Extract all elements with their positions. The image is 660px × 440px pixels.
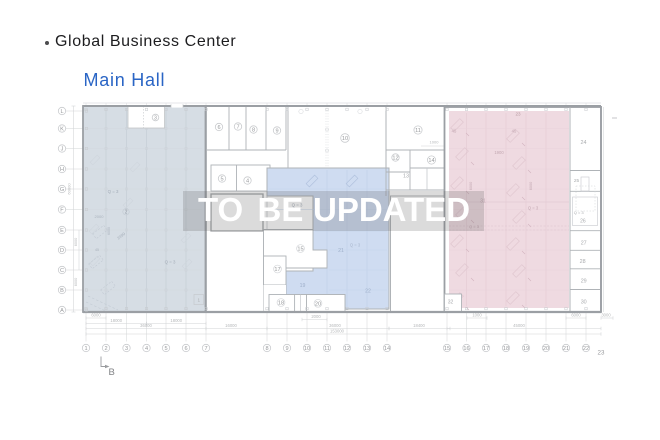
- svg-text:13: 13: [403, 174, 409, 180]
- svg-text:17: 17: [483, 346, 489, 352]
- svg-text:F: F: [60, 208, 64, 214]
- svg-text:3000: 3000: [601, 313, 611, 318]
- svg-text:27: 27: [581, 241, 587, 247]
- svg-text:B: B: [60, 288, 64, 294]
- svg-text:23: 23: [598, 350, 605, 357]
- svg-text:22: 22: [365, 289, 371, 295]
- svg-text:45: 45: [95, 248, 99, 252]
- svg-text:C: C: [60, 268, 64, 274]
- svg-text:10: 10: [304, 346, 310, 352]
- svg-text:45: 45: [452, 129, 457, 134]
- svg-text:5: 5: [164, 346, 167, 352]
- svg-text:2000: 2000: [311, 314, 321, 319]
- svg-text:20: 20: [543, 346, 549, 352]
- svg-text:3: 3: [154, 116, 157, 122]
- svg-text:Q = 3: Q = 3: [574, 210, 585, 215]
- svg-text:2: 2: [104, 346, 107, 352]
- svg-text:11: 11: [324, 346, 330, 352]
- svg-text:1: 1: [84, 346, 87, 352]
- svg-text:K: K: [60, 127, 64, 133]
- svg-text:18000: 18000: [170, 318, 182, 323]
- svg-text:32: 32: [448, 300, 454, 306]
- svg-text:12: 12: [344, 346, 350, 352]
- svg-text:21: 21: [338, 248, 344, 254]
- svg-text:20: 20: [315, 301, 321, 307]
- svg-text:18: 18: [278, 301, 284, 307]
- svg-text:6000: 6000: [91, 313, 101, 318]
- svg-text:153000: 153000: [330, 329, 345, 334]
- svg-text:18: 18: [503, 346, 509, 352]
- svg-text:L: L: [60, 109, 63, 115]
- svg-text:29: 29: [581, 279, 587, 285]
- svg-text:45000: 45000: [513, 323, 525, 328]
- svg-text:12: 12: [392, 156, 398, 162]
- svg-text:6000: 6000: [571, 313, 581, 318]
- svg-text:Q = 3: Q = 3: [528, 206, 539, 211]
- svg-text:8: 8: [265, 346, 268, 352]
- svg-text:G: G: [60, 187, 64, 193]
- svg-text:7: 7: [236, 125, 239, 131]
- svg-text:16000: 16000: [225, 323, 237, 328]
- svg-text:16: 16: [463, 346, 469, 352]
- svg-text:Q = 3: Q = 3: [350, 243, 361, 248]
- svg-text:19: 19: [523, 346, 529, 352]
- svg-text:9: 9: [275, 129, 278, 135]
- svg-text:9: 9: [285, 346, 288, 352]
- svg-text:7: 7: [204, 346, 207, 352]
- svg-text:10: 10: [342, 136, 348, 142]
- svg-text:1000: 1000: [430, 140, 440, 145]
- svg-text:6000: 6000: [74, 238, 78, 246]
- svg-text:A: A: [60, 308, 64, 314]
- svg-text:21: 21: [563, 346, 569, 352]
- svg-text:23: 23: [515, 112, 521, 117]
- svg-text:3: 3: [125, 346, 128, 352]
- svg-text:15: 15: [297, 247, 303, 253]
- svg-text:14: 14: [428, 158, 434, 164]
- svg-text:Q = 3: Q = 3: [165, 260, 176, 265]
- svg-text:4: 4: [145, 346, 148, 352]
- svg-text:1900: 1900: [494, 150, 504, 155]
- svg-text:18000: 18000: [110, 318, 122, 323]
- svg-text:Q = 3: Q = 3: [108, 189, 119, 194]
- svg-text:15: 15: [444, 346, 450, 352]
- svg-text:36000: 36000: [140, 323, 152, 328]
- svg-text:28: 28: [580, 259, 586, 265]
- svg-text:36000: 36000: [329, 323, 341, 328]
- svg-text:4: 4: [246, 179, 249, 185]
- svg-text:E: E: [60, 228, 64, 234]
- svg-text:6000: 6000: [107, 227, 111, 235]
- svg-text:1000: 1000: [472, 313, 482, 318]
- svg-text:J: J: [61, 147, 64, 153]
- svg-text:11: 11: [415, 128, 421, 134]
- svg-text:6000: 6000: [469, 182, 473, 190]
- svg-text:2000: 2000: [95, 214, 105, 219]
- svg-text:B: B: [109, 367, 115, 378]
- svg-text:45: 45: [512, 129, 517, 134]
- svg-text:6: 6: [217, 125, 220, 131]
- svg-text:6000: 6000: [529, 182, 533, 190]
- svg-text:25: 25: [574, 178, 580, 184]
- svg-text:H: H: [60, 167, 64, 173]
- svg-text:30: 30: [581, 300, 587, 306]
- svg-text:D: D: [60, 248, 64, 254]
- svg-text:17: 17: [274, 267, 280, 273]
- svg-text:22: 22: [583, 346, 589, 352]
- svg-text:60000: 60000: [67, 183, 72, 195]
- svg-text:18400: 18400: [413, 323, 425, 328]
- svg-text:5: 5: [220, 177, 223, 183]
- svg-text:14: 14: [384, 346, 390, 352]
- svg-text:13: 13: [364, 346, 370, 352]
- svg-text:6: 6: [184, 346, 187, 352]
- svg-text:6000: 6000: [74, 278, 78, 286]
- svg-text:26: 26: [580, 219, 586, 225]
- svg-text:24: 24: [581, 140, 587, 146]
- svg-text:8: 8: [252, 128, 255, 134]
- svg-text:19: 19: [300, 283, 306, 289]
